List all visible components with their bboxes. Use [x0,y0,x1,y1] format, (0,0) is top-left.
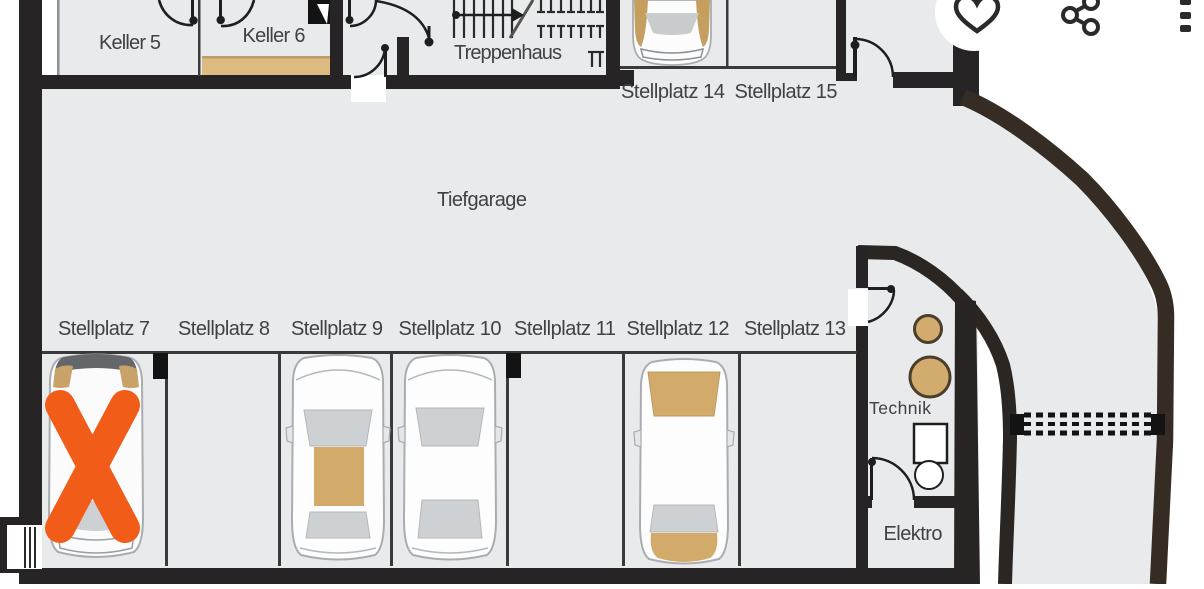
svg-text:Keller 6: Keller 6 [243,25,306,47]
svg-text:Stellplatz 15: Stellplatz 15 [735,81,838,103]
svg-text:Stellplatz 9: Stellplatz 9 [291,318,383,340]
svg-text:Stellplatz 13: Stellplatz 13 [744,318,846,340]
svg-text:Stellplatz 7: Stellplatz 7 [58,318,150,340]
svg-text:Stellplatz 11: Stellplatz 11 [514,318,616,340]
svg-text:Tiefgarage: Tiefgarage [437,189,527,211]
svg-text:Keller 5: Keller 5 [99,32,161,54]
svg-text:Stellplatz 8: Stellplatz 8 [178,318,270,340]
svg-text:Stellplatz 10: Stellplatz 10 [399,318,502,340]
svg-text:Stellplatz 14: Stellplatz 14 [621,81,725,103]
svg-text:Technik: Technik [869,398,931,418]
svg-text:Elektro: Elektro [884,523,943,545]
svg-text:Treppenhaus: Treppenhaus [454,42,562,64]
svg-text:Stellplatz 12: Stellplatz 12 [627,318,730,340]
